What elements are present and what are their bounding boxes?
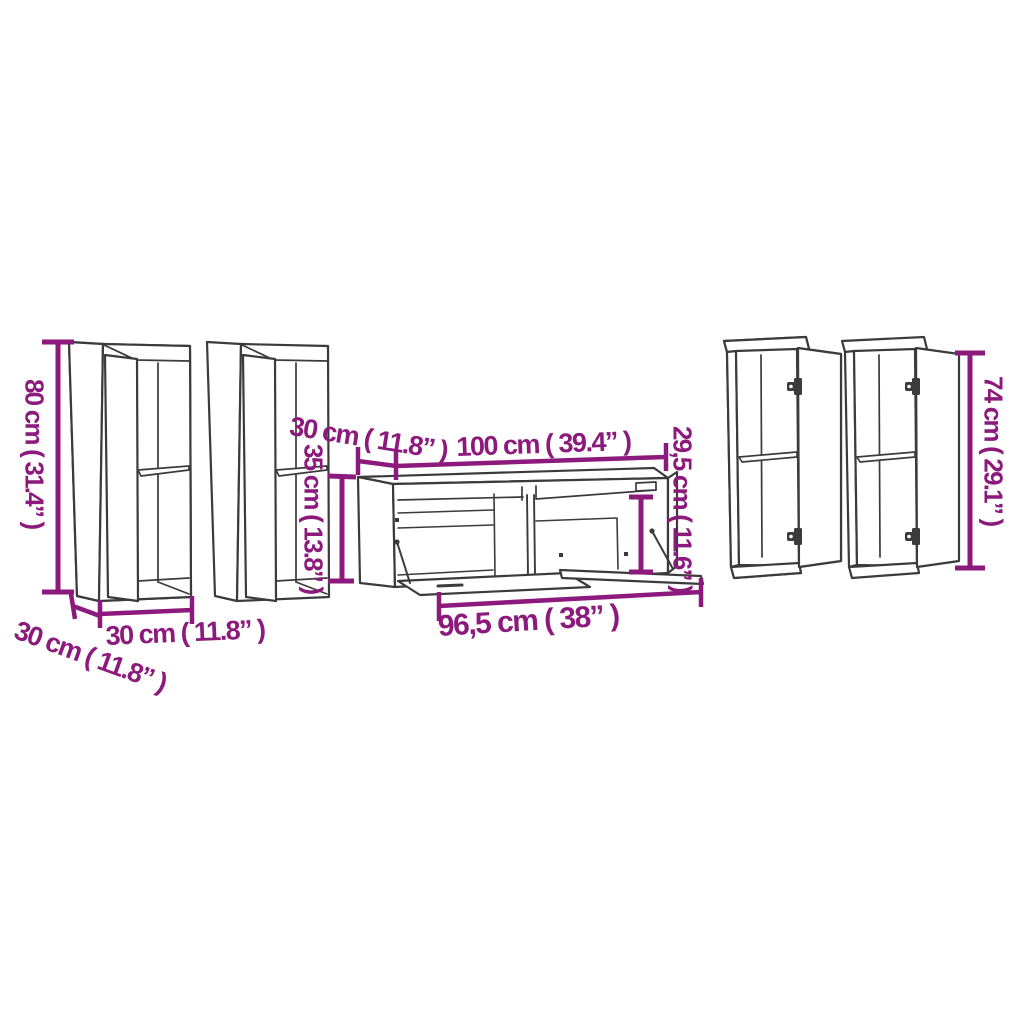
dim-label-stand-height: 35 cm ( 13.8” ) — [299, 444, 326, 593]
wall-cabinet-left-1 — [69, 342, 191, 601]
dim-label-left-cabinet-width: 30 cm ( 11.8” ) — [105, 616, 265, 650]
dim-label-left-cabinet-height: 80 cm ( 31.4” ) — [20, 379, 47, 528]
wall-cabinet-right-2 — [842, 337, 959, 578]
dim-label-right-cabinet-height: 74 cm ( 29.1” ) — [979, 376, 1006, 525]
wall-cabinet-right-1 — [724, 337, 841, 578]
dim-label-stand-opening-height: 29,5 cm ( 11.6” ) — [668, 426, 695, 592]
tv-stand — [358, 468, 703, 595]
furniture-line-art — [0, 0, 1024, 1024]
dimension-diagram: 80 cm ( 31.4” ) 30 cm ( 11.8” ) 30 cm ( … — [0, 0, 1024, 1024]
dim-label-stand-width: 100 cm ( 39.4” ) — [456, 428, 631, 461]
